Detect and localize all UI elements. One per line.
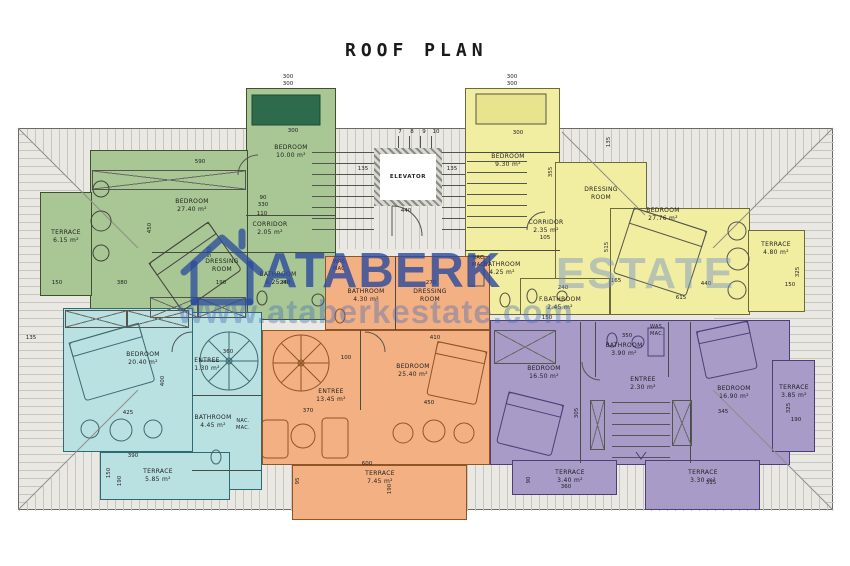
watermark-brand: ATABERK [262,243,501,299]
roof-plan-page: { "title": "ROOF PLAN", "watermark": { "… [0,0,850,566]
watermark-url: www.ataberkestate.com [178,293,574,331]
watermark-suffix: ESTATE [556,249,735,299]
house-icon [184,232,260,302]
